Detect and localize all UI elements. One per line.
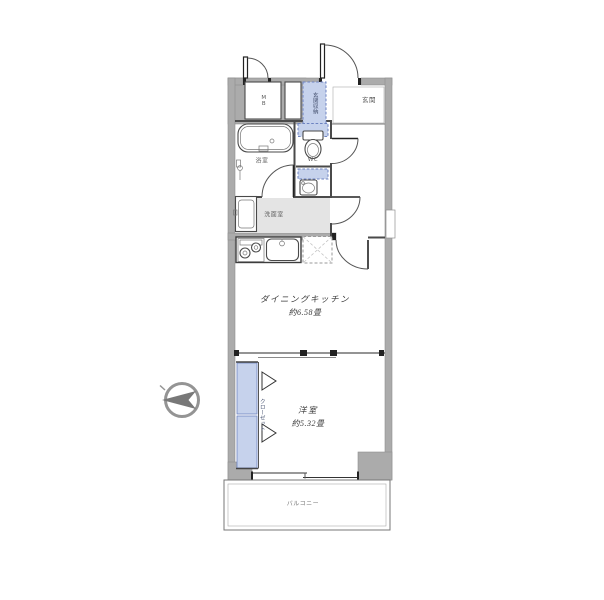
- bedroom-size: 約5.32畳: [292, 417, 325, 430]
- bathroom-label: 浴室: [255, 156, 268, 165]
- toilet: [303, 131, 323, 159]
- closet: [236, 362, 276, 469]
- dining-kitchen-label: ダイニングキッチン 約6.58畳: [260, 293, 350, 319]
- balcony-window: [252, 472, 358, 480]
- entrance-door-swing: [325, 45, 359, 78]
- sliding-partition: [234, 350, 385, 358]
- washing-machine-pan: [234, 197, 257, 232]
- bathtub: [238, 124, 293, 152]
- pipe-shaft: [285, 82, 301, 119]
- washroom-label: 洗面室: [264, 210, 284, 219]
- basin-shelf: [298, 169, 328, 179]
- balcony-label: バルコニー: [287, 499, 319, 508]
- floor-plan: MB 玄関収納 玄関 浴室 WC 洗面室 ダイニングキッチン 約6.58畳 洋室…: [0, 0, 604, 600]
- sink: [267, 239, 299, 261]
- dining-kitchen-size: 約6.58畳: [260, 306, 350, 319]
- refrigerator-space: [303, 237, 332, 264]
- entrance-label: 玄関: [362, 94, 376, 104]
- bedroom-label: 洋室 約5.32畳: [292, 404, 325, 430]
- compass-north-arrow-icon: [160, 384, 199, 417]
- closet-label: クローゼット: [258, 399, 264, 432]
- entrance-storage-label: 玄関収納: [311, 92, 317, 114]
- wc-label: WC: [308, 157, 318, 163]
- mb-label: MB: [260, 95, 266, 107]
- kitchen-counter: [236, 237, 301, 263]
- pipe-space-recess: [386, 210, 395, 238]
- bedroom-name: 洋室: [292, 404, 325, 417]
- mb-door-swing: [248, 58, 269, 78]
- entrance-door-leaf: [321, 44, 325, 78]
- wash-basin: [300, 180, 317, 195]
- dining-kitchen-name: ダイニングキッチン: [260, 293, 350, 306]
- mb-door-leaf: [244, 57, 248, 78]
- shower-fixture: [237, 160, 243, 180]
- folding-door-mark: [262, 372, 276, 390]
